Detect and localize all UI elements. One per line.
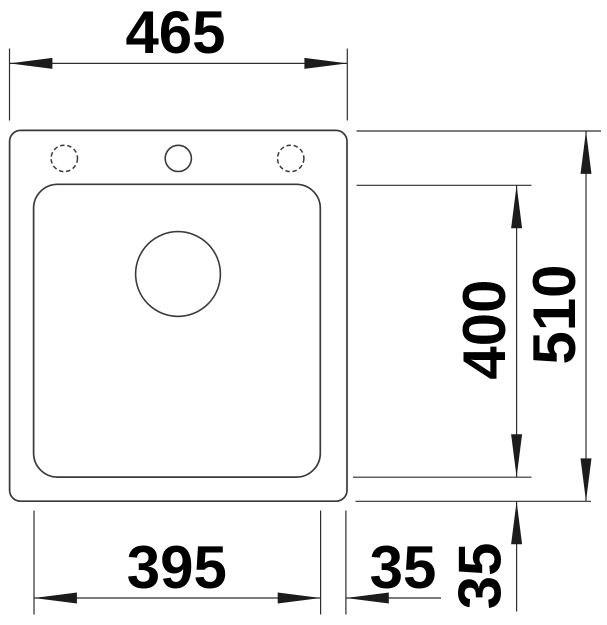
svg-text:35: 35	[447, 543, 514, 610]
svg-text:510: 510	[521, 265, 588, 365]
svg-text:395: 395	[127, 534, 227, 601]
svg-text:35: 35	[370, 534, 437, 601]
svg-text:465: 465	[125, 0, 225, 66]
svg-text:400: 400	[451, 279, 518, 379]
